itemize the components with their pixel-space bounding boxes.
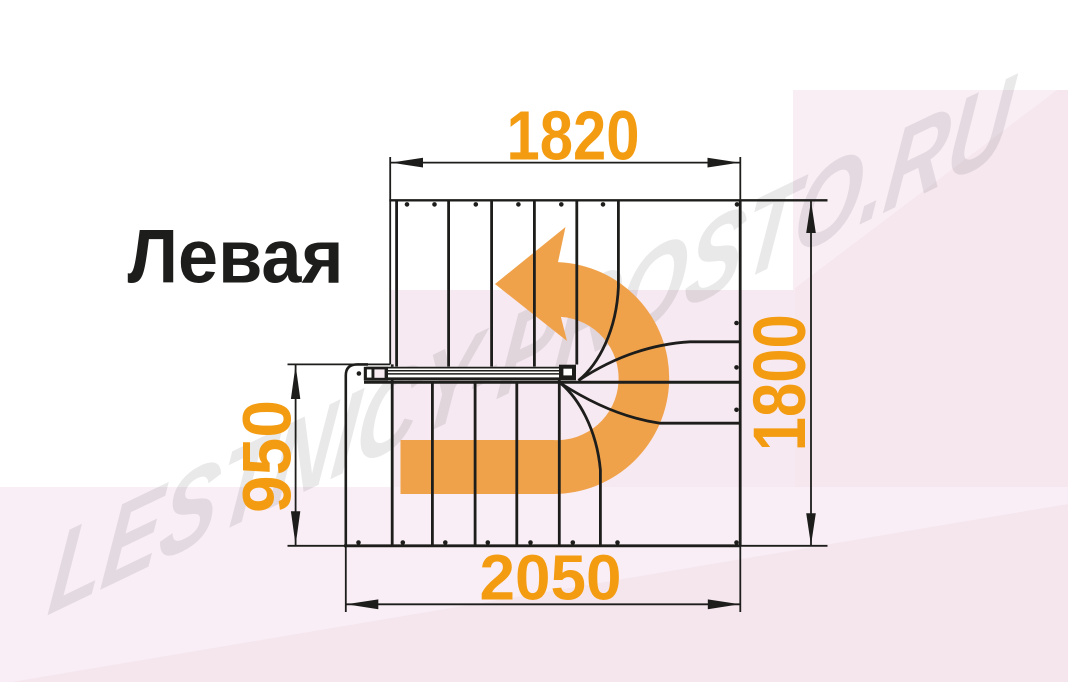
svg-text:2050: 2050	[480, 541, 622, 613]
svg-text:1800: 1800	[738, 314, 821, 451]
svg-text:Левая: Левая	[128, 215, 344, 300]
svg-text:950: 950	[229, 400, 306, 513]
svg-text:1820: 1820	[507, 96, 640, 174]
